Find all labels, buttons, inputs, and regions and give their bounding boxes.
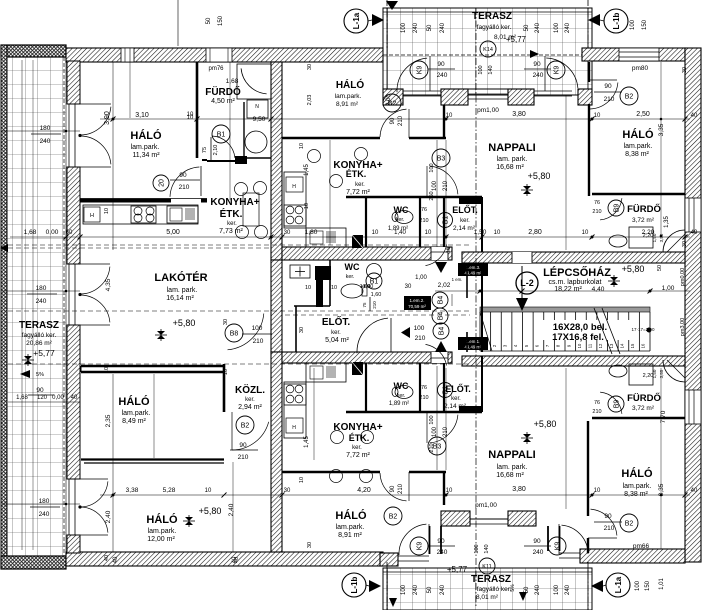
svg-text:fagyálló ker.: fagyálló ker. — [477, 586, 512, 593]
svg-text:100: 100 — [554, 584, 560, 595]
svg-text:10: 10 — [594, 113, 601, 119]
svg-text:K9: K9 — [416, 66, 423, 75]
svg-text:ELŐT.: ELŐT. — [445, 383, 471, 394]
svg-text:5,04 m²: 5,04 m² — [325, 337, 349, 344]
svg-text:1,80: 1,80 — [305, 229, 318, 236]
svg-text:240: 240 — [440, 584, 446, 595]
svg-text:50: 50 — [427, 586, 433, 593]
svg-text:lam.park.: lam.park. — [122, 410, 151, 417]
svg-text:HÁLÓ: HÁLÓ — [335, 509, 367, 522]
svg-text:100: 100 — [635, 580, 641, 591]
svg-text:240: 240 — [437, 72, 448, 79]
svg-text:LAKÓTÉR: LAKÓTÉR — [154, 271, 207, 284]
svg-text:B3: B3 — [437, 155, 446, 162]
svg-text:+5,80: +5,80 — [534, 419, 557, 429]
svg-text:30: 30 — [682, 241, 688, 247]
svg-text:1,50: 1,50 — [474, 229, 487, 236]
svg-text:pm80: pm80 — [632, 65, 649, 72]
svg-text:2,50: 2,50 — [636, 111, 650, 118]
svg-text:lam. park.: lam. park. — [497, 464, 528, 471]
svg-text:210: 210 — [179, 184, 190, 191]
svg-text:fagyálló ker.: fagyálló ker. — [477, 24, 512, 31]
svg-text:3,90: 3,90 — [104, 111, 111, 125]
svg-text:10: 10 — [582, 230, 589, 236]
svg-text:4,20: 4,20 — [357, 487, 371, 494]
svg-text:HÁLÓ: HÁLÓ — [118, 395, 150, 408]
svg-text:90: 90 — [533, 61, 541, 68]
svg-text:2,00: 2,00 — [386, 94, 392, 106]
svg-text:cs.m. lapburkolat: cs.m. lapburkolat — [549, 279, 602, 286]
svg-text:pm1,00: pm1,00 — [475, 502, 497, 509]
svg-text:250: 250 — [429, 191, 435, 200]
svg-text:210: 210 — [419, 395, 428, 401]
svg-text:240: 240 — [565, 584, 571, 595]
svg-text:+5,77: +5,77 — [447, 565, 468, 574]
svg-text:210: 210 — [592, 209, 601, 215]
svg-text:40: 40 — [691, 113, 698, 119]
svg-text:20: 20 — [158, 179, 165, 187]
svg-text:1,35: 1,35 — [664, 216, 670, 228]
svg-text:+5,77: +5,77 — [506, 35, 527, 44]
svg-text:3,55: 3,55 — [659, 369, 664, 378]
svg-text:30: 30 — [307, 542, 313, 548]
svg-text:240: 240 — [36, 298, 47, 305]
svg-text:1.em.1.: 1.em.1. — [466, 339, 480, 344]
svg-text:90: 90 — [390, 485, 396, 492]
svg-text:210: 210 — [604, 525, 615, 532]
svg-text:HÁLÓ: HÁLÓ — [130, 129, 162, 142]
svg-text:8,38 m²: 8,38 m² — [625, 151, 649, 158]
svg-text:100: 100 — [478, 65, 484, 74]
svg-text:10: 10 — [299, 143, 305, 149]
svg-text:H: H — [292, 425, 296, 431]
svg-text:4,50 m²: 4,50 m² — [211, 98, 235, 105]
svg-text:TERASZ: TERASZ — [471, 574, 511, 585]
svg-text:KÖZL.: KÖZL. — [235, 383, 265, 396]
svg-text:76: 76 — [594, 400, 600, 406]
svg-text:K9: K9 — [416, 542, 423, 551]
svg-text:1,45: 1,45 — [304, 436, 310, 448]
svg-text:+5,80: +5,80 — [622, 264, 645, 274]
svg-text:210: 210 — [398, 483, 404, 494]
svg-text:10: 10 — [304, 203, 310, 209]
svg-text:1,89 m²: 1,89 m² — [389, 401, 409, 407]
svg-text:8,49 m²: 8,49 m² — [122, 418, 146, 425]
svg-text:16,14 m²: 16,14 m² — [166, 295, 194, 302]
svg-text:H: H — [292, 184, 296, 190]
svg-text:90: 90 — [390, 117, 396, 124]
svg-text:10: 10 — [187, 112, 194, 118]
svg-text:30: 30 — [682, 67, 688, 73]
svg-text:90: 90 — [533, 538, 541, 545]
svg-text:ker.: ker. — [451, 396, 461, 402]
svg-text:2,20: 2,20 — [642, 229, 655, 236]
svg-text:210: 210 — [398, 115, 404, 126]
svg-text:ÉTK.: ÉTK. — [346, 169, 367, 179]
svg-text:10: 10 — [446, 247, 452, 253]
svg-text:120: 120 — [37, 395, 48, 401]
svg-text:240: 240 — [535, 584, 541, 595]
svg-text:B2: B2 — [389, 513, 398, 520]
svg-text:4,40: 4,40 — [592, 286, 605, 293]
svg-text:10: 10 — [223, 369, 229, 375]
svg-text:ker.: ker. — [227, 221, 237, 227]
svg-text:2,02: 2,02 — [438, 282, 451, 289]
svg-text:2,20: 2,20 — [643, 373, 654, 379]
svg-text:ÉTK.: ÉTK. — [220, 207, 243, 220]
svg-text:240: 240 — [533, 72, 544, 79]
svg-text:100: 100 — [474, 544, 480, 553]
svg-text:lam. park.: lam. park. — [167, 287, 198, 294]
svg-text:240: 240 — [565, 22, 571, 33]
svg-text:3,38: 3,38 — [126, 487, 139, 494]
svg-text:12: 12 — [598, 343, 603, 348]
svg-text:210: 210 — [253, 338, 264, 345]
svg-text:L-1a: L-1a — [614, 576, 623, 593]
svg-text:pm1,00: pm1,00 — [477, 107, 499, 114]
svg-text:8,38 m²: 8,38 m² — [624, 491, 648, 498]
svg-text:lam.park.: lam.park. — [624, 143, 653, 150]
svg-text:2,40: 2,40 — [105, 510, 112, 523]
svg-text:L-1b: L-1b — [612, 12, 621, 29]
svg-text:lam.park.: lam.park. — [148, 528, 177, 535]
svg-text:B4: B4 — [437, 312, 444, 321]
svg-text:240: 240 — [437, 549, 448, 556]
svg-text:7,73 m²: 7,73 m² — [219, 228, 243, 235]
svg-text:TERASZ: TERASZ — [19, 320, 59, 331]
svg-text:1,68: 1,68 — [16, 395, 28, 401]
svg-text:90: 90 — [437, 61, 445, 68]
svg-text:K14: K14 — [483, 47, 493, 53]
svg-text:7,72 m²: 7,72 m² — [346, 189, 370, 196]
svg-text:LÉPCSŐHÁZ: LÉPCSŐHÁZ — [543, 266, 611, 279]
svg-text:0,00: 0,00 — [52, 395, 64, 401]
svg-text:5,28: 5,28 — [163, 487, 176, 494]
svg-text:B8: B8 — [230, 330, 239, 337]
svg-text:lam. park.: lam. park. — [497, 156, 528, 163]
svg-text:210: 210 — [238, 454, 249, 461]
svg-text:K9: K9 — [554, 542, 561, 551]
svg-text:2,35: 2,35 — [105, 414, 112, 427]
svg-text:N: N — [255, 104, 259, 110]
svg-text:180: 180 — [40, 125, 51, 132]
svg-text:8,91 m²: 8,91 m² — [336, 101, 359, 108]
svg-text:30: 30 — [284, 488, 291, 494]
svg-text:10: 10 — [494, 230, 501, 236]
svg-text:10: 10 — [372, 230, 379, 236]
svg-text:7,72 m²: 7,72 m² — [346, 452, 370, 459]
svg-text:76: 76 — [421, 385, 427, 391]
svg-text:90: 90 — [437, 538, 445, 545]
svg-text:TERASZ: TERASZ — [472, 11, 512, 22]
svg-text:10: 10 — [594, 488, 601, 494]
svg-text:lam.park.: lam.park. — [335, 93, 362, 100]
svg-text:40: 40 — [113, 556, 119, 563]
svg-text:210: 210 — [415, 335, 426, 342]
svg-text:+5,80: +5,80 — [528, 171, 551, 181]
svg-text:NAPPALI: NAPPALI — [488, 142, 535, 154]
svg-text:10: 10 — [446, 488, 453, 494]
svg-text:10: 10 — [205, 488, 212, 494]
svg-text:2,40: 2,40 — [228, 503, 235, 516]
svg-text:fagyálló ker.: fagyálló ker. — [22, 332, 57, 339]
svg-text:0,00: 0,00 — [46, 229, 59, 236]
svg-text:pm66: pm66 — [633, 543, 650, 550]
svg-text:+5,80: +5,80 — [199, 506, 222, 516]
svg-text:2,03: 2,03 — [307, 95, 313, 106]
svg-text:B1: B1 — [370, 278, 379, 285]
svg-text:FÜRDŐ: FÜRDŐ — [627, 203, 661, 215]
svg-text:75: 75 — [362, 302, 367, 308]
svg-text:30: 30 — [284, 230, 291, 236]
svg-text:ker.: ker. — [331, 330, 341, 336]
svg-text:210: 210 — [592, 409, 601, 415]
svg-text:pm76: pm76 — [208, 66, 224, 72]
svg-text:KONYHA+: KONYHA+ — [333, 422, 382, 433]
svg-text:ker.: ker. — [460, 218, 470, 224]
svg-text:16: 16 — [641, 343, 646, 348]
svg-text:2,94 m²: 2,94 m² — [238, 404, 262, 411]
svg-text:11,34 m²: 11,34 m² — [132, 152, 160, 159]
svg-text:1,60: 1,60 — [371, 292, 382, 298]
svg-text:2,14 m²: 2,14 m² — [444, 403, 467, 410]
svg-text:18,22 m²: 18,22 m² — [554, 286, 582, 293]
svg-text:210: 210 — [604, 96, 615, 103]
svg-text:30: 30 — [405, 284, 412, 290]
svg-text:14: 14 — [619, 343, 624, 348]
svg-text:11: 11 — [588, 343, 593, 348]
svg-text:WC: WC — [394, 381, 409, 391]
svg-text:4,35: 4,35 — [105, 278, 112, 291]
svg-text:3,72 m²: 3,72 m² — [632, 217, 655, 224]
svg-text:WC: WC — [345, 262, 360, 272]
svg-text:16,68 m²: 16,68 m² — [496, 472, 524, 479]
svg-text:FÜRDŐ: FÜRDŐ — [627, 392, 661, 404]
svg-text:20,86 m²: 20,86 m² — [26, 340, 52, 347]
svg-text:B2: B2 — [241, 422, 250, 429]
svg-text:1.em.3.: 1.em.3. — [466, 265, 480, 270]
svg-text:K9: K9 — [553, 66, 560, 75]
svg-text:10: 10 — [577, 343, 582, 348]
svg-text:ker.: ker. — [352, 445, 362, 451]
svg-text:150: 150 — [642, 19, 648, 30]
svg-text:240: 240 — [40, 138, 51, 145]
svg-text:10: 10 — [331, 285, 337, 291]
svg-text:ker.: ker. — [346, 274, 355, 280]
svg-text:100: 100 — [414, 325, 425, 332]
svg-text:140: 140 — [484, 544, 490, 553]
svg-text:1,68: 1,68 — [24, 229, 37, 236]
svg-text:100: 100 — [554, 22, 560, 33]
svg-text:3,80: 3,80 — [512, 111, 526, 118]
svg-text:100: 100 — [429, 415, 435, 424]
svg-text:L-1b: L-1b — [350, 576, 359, 593]
svg-text:lam.park.: lam.park. — [336, 524, 365, 531]
svg-text:pm3,00: pm3,00 — [680, 318, 686, 336]
svg-text:240: 240 — [533, 549, 544, 556]
svg-text:ker.: ker. — [355, 182, 365, 188]
svg-text:50: 50 — [427, 24, 433, 31]
svg-text:12,00 m²: 12,00 m² — [147, 536, 175, 543]
svg-text:30: 30 — [299, 327, 305, 333]
svg-text:140: 140 — [488, 65, 494, 74]
svg-text:2,80: 2,80 — [528, 229, 542, 236]
svg-text:50: 50 — [206, 17, 212, 24]
svg-text:40: 40 — [71, 395, 78, 401]
svg-text:8,91 m²: 8,91 m² — [338, 532, 362, 539]
svg-text:B2: B2 — [625, 520, 634, 527]
svg-text:10: 10 — [104, 367, 110, 373]
svg-text:240: 240 — [535, 22, 541, 33]
svg-text:40: 40 — [234, 557, 240, 563]
svg-text:50: 50 — [657, 265, 663, 271]
svg-text:2,10: 2,10 — [213, 145, 219, 156]
svg-text:150: 150 — [218, 15, 224, 26]
svg-text:90: 90 — [179, 172, 187, 179]
svg-text:KONYHA+: KONYHA+ — [210, 197, 259, 208]
svg-text:60: 60 — [66, 230, 73, 236]
svg-text:100: 100 — [252, 325, 263, 332]
svg-text:30: 30 — [223, 319, 229, 325]
svg-text:9,50: 9,50 — [253, 116, 266, 123]
svg-text:240: 240 — [440, 22, 446, 33]
svg-text:ÉTK.: ÉTK. — [349, 433, 370, 443]
svg-text:FÜRDŐ: FÜRDŐ — [205, 85, 241, 98]
svg-text:5%: 5% — [36, 372, 44, 378]
svg-text:pm0,00: pm0,00 — [680, 268, 686, 286]
svg-text:+5,80: +5,80 — [173, 318, 196, 328]
svg-text:B1: B1 — [217, 131, 226, 138]
svg-text:76: 76 — [421, 207, 427, 213]
svg-text:240: 240 — [413, 22, 419, 33]
svg-text:ker.: ker. — [397, 393, 406, 399]
svg-text:150: 150 — [645, 580, 651, 591]
svg-text:ELŐT.: ELŐT. — [322, 315, 351, 328]
svg-text:3,10: 3,10 — [135, 112, 149, 119]
svg-text:40: 40 — [104, 555, 110, 561]
svg-text:B2: B2 — [625, 93, 634, 100]
svg-text:17X16,8 fel.: 17X16,8 fel. — [552, 332, 604, 343]
svg-text:3,80: 3,80 — [512, 486, 526, 493]
svg-text:50: 50 — [524, 24, 530, 31]
svg-text:L-1a: L-1a — [352, 12, 361, 29]
svg-text:75: 75 — [202, 147, 208, 153]
svg-text:90: 90 — [604, 83, 612, 90]
svg-text:B4: B4 — [437, 296, 444, 305]
svg-text:15: 15 — [630, 343, 635, 348]
svg-text:5%: 5% — [510, 584, 516, 592]
svg-text:30: 30 — [307, 64, 313, 70]
svg-text:1 em.: 1 em. — [452, 277, 463, 282]
svg-text:10: 10 — [305, 285, 311, 291]
svg-text:240: 240 — [39, 511, 50, 518]
svg-text:K11: K11 — [482, 564, 491, 570]
svg-text:76: 76 — [594, 200, 600, 206]
svg-text:2,14 m²: 2,14 m² — [453, 225, 476, 232]
svg-text:16,68 m²: 16,68 m² — [496, 164, 524, 171]
svg-text:210: 210 — [429, 443, 435, 452]
svg-text:3,55: 3,55 — [659, 233, 664, 242]
svg-text:ker.: ker. — [396, 217, 405, 223]
svg-text:180: 180 — [39, 498, 50, 505]
svg-text:100: 100 — [401, 584, 407, 595]
svg-text:90: 90 — [604, 513, 612, 520]
svg-text:3,72 m²: 3,72 m² — [632, 405, 655, 412]
svg-text:ELŐT.: ELŐT. — [452, 204, 478, 215]
svg-text:NAPPALI: NAPPALI — [488, 449, 535, 461]
svg-text:3,35: 3,35 — [658, 123, 665, 136]
svg-text:100: 100 — [401, 22, 407, 33]
svg-text:180: 180 — [36, 285, 47, 292]
svg-text:1,00: 1,00 — [415, 275, 427, 281]
svg-text:HÁLÓ: HÁLÓ — [622, 128, 654, 141]
svg-text:1,01: 1,01 — [659, 578, 665, 590]
svg-text:10: 10 — [299, 477, 305, 483]
svg-text:H: H — [90, 213, 94, 219]
svg-text:40: 40 — [691, 230, 698, 236]
svg-text:5,00: 5,00 — [166, 229, 180, 236]
svg-text:HÁLÓ: HÁLÓ — [336, 78, 365, 91]
svg-text:100: 100 — [630, 19, 636, 30]
svg-text:90: 90 — [239, 442, 247, 449]
svg-text:100: 100 — [429, 163, 435, 172]
svg-text:B4: B4 — [438, 327, 445, 336]
svg-text:ker.: ker. — [245, 397, 255, 403]
svg-text:8,01 m²: 8,01 m² — [476, 594, 499, 601]
svg-text:90: 90 — [36, 387, 44, 394]
svg-text:10: 10 — [425, 230, 432, 236]
svg-text:1,40: 1,40 — [394, 230, 406, 236]
svg-text:70,59 m²: 70,59 m² — [408, 304, 426, 309]
svg-text:210: 210 — [419, 218, 428, 224]
svg-text:HÁLÓ: HÁLÓ — [146, 513, 178, 526]
svg-text:210: 210 — [372, 301, 377, 309]
svg-text:lam.park.: lam.park. — [623, 483, 652, 490]
svg-text:40: 40 — [691, 488, 698, 494]
svg-text:+5,77: +5,77 — [33, 348, 55, 358]
svg-text:1,45: 1,45 — [304, 164, 310, 176]
svg-text:lam.park.: lam.park. — [131, 144, 160, 151]
svg-text:10: 10 — [104, 208, 110, 214]
svg-text:WC: WC — [394, 205, 409, 215]
svg-text:HÁLÓ: HÁLÓ — [621, 467, 653, 480]
svg-text:240: 240 — [413, 584, 419, 595]
svg-text:1.em.2.: 1.em.2. — [409, 298, 424, 303]
